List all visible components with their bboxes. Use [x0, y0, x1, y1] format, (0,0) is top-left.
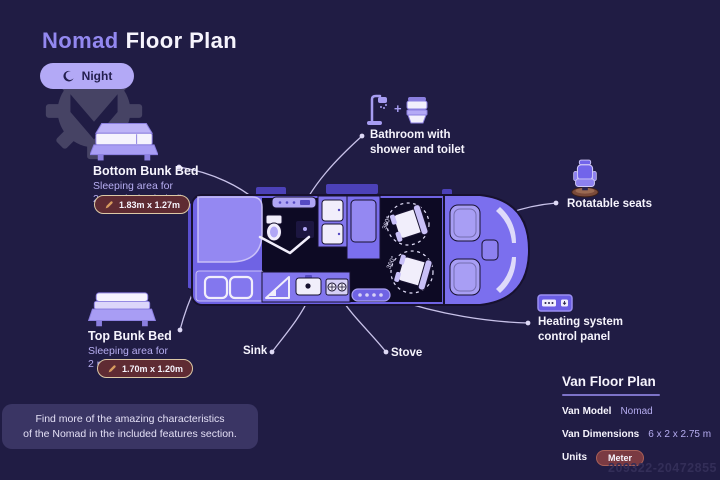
top-bunk-dimensions-badge[interactable]: 1.70m x 1.20m — [97, 359, 193, 378]
bottom-bunk-dimensions-badge[interactable]: 1.83m x 1.27m — [94, 195, 190, 214]
top-bunk-title: Top Bunk Bed — [88, 329, 172, 343]
bathroom-label: Bathroom with shower and toilet — [370, 128, 465, 157]
shower-icon — [365, 93, 391, 125]
cab-console — [482, 240, 498, 260]
spec-panel: Van Floor Plan Van Model Nomad Van Dimen… — [562, 374, 712, 465]
toilet-icon — [404, 95, 430, 125]
info-box-line2: of the Nomad in the included features se… — [23, 427, 237, 442]
info-box: Find more of the amazing characteristics… — [2, 404, 258, 449]
spec-panel-divider — [562, 394, 660, 396]
night-mode-label: Night — [82, 69, 113, 83]
spec-row-van-model: Van Model Nomad — [562, 404, 712, 419]
bunk-bed-area — [198, 197, 262, 262]
moon-icon — [62, 70, 75, 83]
dinette — [347, 196, 380, 259]
page-title-accent: Nomad — [42, 28, 119, 53]
rotatable-seats-label: Rotatable seats — [567, 197, 652, 212]
van-floor-plan-diagram: 360° 360° — [188, 183, 533, 308]
pencil-icon — [104, 200, 114, 210]
spec-panel-title: Van Floor Plan — [562, 374, 712, 389]
plus-sign: + — [394, 101, 402, 116]
heater-unit — [352, 289, 390, 301]
night-mode-toggle[interactable]: Night — [40, 63, 134, 89]
bench-seat — [196, 271, 264, 301]
watermark-id: 209322-20472855 — [608, 461, 717, 475]
bunk-bed-icon-2 — [88, 290, 156, 332]
seat-icon — [568, 158, 602, 198]
control-panel-icon — [537, 294, 573, 312]
stove-label: Stove — [391, 346, 422, 361]
pencil-icon — [107, 364, 117, 374]
sink-label: Sink — [243, 344, 267, 359]
heating-label: Heating system control panel — [538, 315, 623, 344]
bunk-bed-icon — [90, 120, 158, 164]
floor-plan-page: NomadFloor Plan Night — [0, 0, 720, 480]
spec-row-van-dimensions: Van Dimensions 6 x 2 x 2.75 m — [562, 427, 712, 442]
page-title-rest: Floor Plan — [126, 28, 238, 53]
page-title: NomadFloor Plan — [42, 28, 237, 54]
bottom-bunk-title: Bottom Bunk Bed — [93, 164, 199, 178]
kitchen-counter — [262, 272, 350, 302]
wardrobe — [318, 196, 347, 247]
info-box-line1: Find more of the amazing characteristics — [35, 412, 224, 427]
